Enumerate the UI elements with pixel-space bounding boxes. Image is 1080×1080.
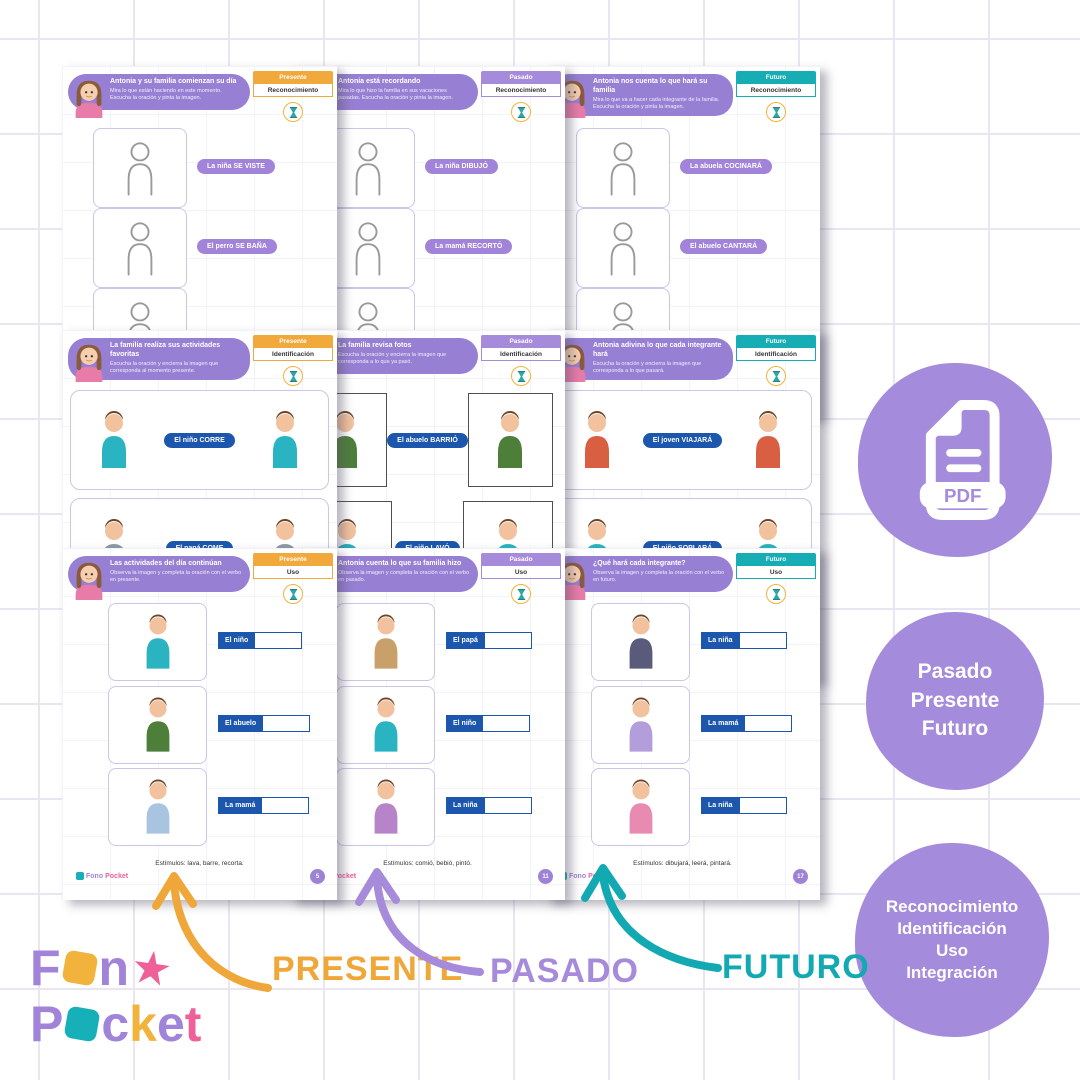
person-icon (577, 410, 617, 470)
person-icon (622, 696, 660, 754)
worksheet-header: Antonia y su familia comienzan su día Mi… (68, 74, 250, 110)
person-icon (265, 410, 305, 470)
worksheet-futuro-uso: ¿Qué hará cada integrante? Observa la im… (545, 548, 820, 900)
tense-tab: Pasado Uso (481, 553, 561, 604)
pdf-label: PDF (944, 485, 981, 506)
subject-label: El niño (446, 715, 483, 732)
girl-avatar-icon (71, 340, 107, 382)
person-lineart-icon (121, 219, 159, 277)
hourglass-badge (511, 102, 531, 122)
illustration-girl-drawing-flag (591, 603, 690, 681)
illustration-dad-eating (336, 603, 435, 681)
worksheet-presente-uso: Las actividades del día continúan Observ… (62, 548, 337, 900)
person-icon (94, 410, 134, 470)
tense-line: Presente (911, 687, 1000, 715)
sentence-pill: La mamá RECORTÓ (425, 239, 512, 254)
hourglass-badge (766, 584, 786, 604)
hourglass-badge (511, 366, 531, 386)
levels-badge: Reconocimiento Identificación Uso Integr… (855, 843, 1049, 1037)
tense-label: Pasado (481, 553, 561, 565)
person-icon (622, 778, 660, 836)
hourglass-badge (511, 584, 531, 604)
logo-letter: F (30, 943, 61, 993)
hourglass-icon (771, 588, 782, 601)
illustration-boy-dishes (108, 603, 207, 681)
hourglass-icon (516, 588, 527, 601)
level-label: Uso (253, 565, 333, 579)
level-label: Identificación (253, 347, 333, 361)
tense-tab: Presente Uso (253, 553, 333, 604)
worksheet-subtitle: Observa la imagen y completa la oración … (110, 570, 242, 584)
tense-label: Futuro (736, 71, 816, 83)
illustration-boy-drinking (336, 686, 435, 764)
subject-label: La mamá (701, 715, 745, 732)
hourglass-badge (283, 102, 303, 122)
hourglass-badge (766, 366, 786, 386)
pdf-badge: PDF (858, 363, 1052, 557)
subject-label: La niña (446, 797, 485, 814)
person-icon (622, 613, 660, 671)
answer-blank[interactable] (255, 632, 302, 649)
tense-label: Presente (253, 553, 333, 565)
fill-in-row: La niña (701, 632, 787, 649)
illustration-girl-painting-wall (591, 768, 690, 846)
star-icon: ★ (128, 942, 175, 993)
stimuli-footnote: Estímulos: dibujará, leerá, pintará. (545, 860, 820, 867)
sentence-pill: El abuelo CANTARÁ (680, 239, 767, 254)
subject-label: El abuelo (218, 715, 263, 732)
worksheet-header: Antonia adivina lo que cada integrante h… (551, 338, 733, 380)
logo-letter: n (99, 943, 130, 993)
hourglass-badge (283, 584, 303, 604)
tense-label: Presente (253, 71, 333, 83)
logo-letter: P (30, 999, 63, 1049)
person-lineart-icon (349, 219, 387, 277)
hourglass-icon (288, 106, 299, 119)
fill-in-row: La mamá (701, 715, 792, 732)
tense-label: Presente (253, 335, 333, 347)
person-lineart-icon (121, 139, 159, 197)
hourglass-icon (516, 106, 527, 119)
fill-in-row: La mamá (218, 797, 309, 814)
girl-avatar-icon (71, 558, 107, 600)
person-icon (367, 696, 405, 754)
worksheet-subtitle: Mira lo que va a hacer cada integrante d… (593, 97, 725, 111)
level-label: Uso (481, 565, 561, 579)
answer-blank[interactable] (263, 715, 310, 732)
worksheet-subtitle: Observa la imagen y completa la oración … (593, 570, 725, 584)
person-lineart-icon (349, 139, 387, 197)
worksheet-header: ¿Qué hará cada integrante? Observa la im… (551, 556, 733, 592)
fonopocket-mini-icon (76, 872, 84, 880)
hourglass-icon (771, 106, 782, 119)
subject-label: El papá (446, 632, 485, 649)
worksheet-title: Antonia está recordando (338, 78, 470, 87)
subject-label: La niña (701, 632, 740, 649)
worksheet-title: ¿Qué hará cada integrante? (593, 560, 725, 569)
worksheet-subtitle: Escucha la oración y encierra la imagen … (593, 361, 725, 375)
sentence-pill: La niña SE VISTE (197, 159, 275, 174)
fill-in-row: El abuelo (218, 715, 310, 732)
level-line: Integración (906, 962, 998, 984)
worksheet-header: Las actividades del día continúan Observ… (68, 556, 250, 592)
worksheet-title: Antonia cuenta lo que su familia hizo (338, 560, 470, 569)
label-futuro: FUTURO (722, 948, 870, 987)
diamond-icon (64, 1005, 101, 1042)
sentence-pill: El abuelo BARRIÓ (387, 433, 468, 448)
level-label: Reconocimiento (253, 83, 333, 97)
answer-blank[interactable] (740, 797, 787, 814)
worksheet-subtitle: Mira lo que hizo la familia en sus vacac… (338, 88, 470, 102)
worksheet-subtitle: Observa la imagen y completa la oración … (338, 570, 470, 584)
logo-letter: k (129, 999, 157, 1049)
person-icon (490, 410, 530, 470)
label-pasado: PASADO (490, 952, 639, 991)
worksheet-title: Las actividades del día continúan (110, 560, 242, 569)
fill-in-row: El papá (446, 632, 532, 649)
sentence-pill: El niño CORRE (164, 433, 235, 448)
person-icon (367, 613, 405, 671)
answer-blank[interactable] (745, 715, 792, 732)
choice-row: El joven VIAJARÁ (553, 390, 812, 490)
hourglass-badge (766, 102, 786, 122)
logo-letter: t (185, 999, 202, 1049)
diamond-icon (61, 949, 98, 986)
answer-blank[interactable] (485, 797, 532, 814)
worksheet-title: Antonia adivina lo que cada integrante h… (593, 342, 725, 360)
illustration-boy-running (254, 398, 316, 482)
brand-word: Fono (569, 873, 586, 880)
brand-word: Pocket (105, 873, 128, 880)
worksheet-title: La familia revisa fotos (338, 342, 470, 351)
worksheet-header: Antonia nos cuenta lo que hará su famili… (551, 74, 733, 116)
tense-label: Futuro (736, 553, 816, 565)
answer-blank[interactable] (485, 632, 532, 649)
hourglass-icon (516, 370, 527, 383)
illustration-grandma-cooking (576, 128, 670, 208)
fonopocket-logo: F n ★ P c k e t (30, 940, 201, 1052)
illustration-mom-books (591, 686, 690, 764)
worksheet-subtitle: Escucha la oración y encierra la imagen … (110, 361, 242, 375)
tense-label: Pasado (481, 335, 561, 347)
illustration-man-suitcase (566, 398, 628, 482)
illustration-girl-painting (336, 768, 435, 846)
illustration-grandpa-leaves (468, 393, 553, 487)
tense-line: Futuro (922, 715, 988, 743)
page-number-badge: 17 (793, 869, 808, 884)
tense-tab: Futuro Reconocimiento (736, 71, 816, 122)
person-lineart-icon (604, 219, 642, 277)
person-icon (139, 696, 177, 754)
illustration-grandpa-singing (576, 208, 670, 288)
fill-in-row: La niña (701, 797, 787, 814)
tense-label: Futuro (736, 335, 816, 347)
illustration-boy-sitting (83, 398, 145, 482)
brand-word: Pocket (588, 873, 611, 880)
sentence-pill: El joven VIAJARÁ (643, 433, 723, 448)
worksheet-header: La familia realiza sus actividades favor… (68, 338, 250, 380)
subject-label: La mamá (218, 797, 262, 814)
sentence-pill: El perro SE BAÑA (197, 239, 277, 254)
worksheet-title: Antonia y su familia comienzan su día (110, 78, 242, 87)
fill-in-row: El niño (218, 632, 302, 649)
illustration-girl-dressing (93, 128, 187, 208)
logo-line-1: F n ★ (30, 940, 201, 996)
hourglass-badge (283, 366, 303, 386)
sentence-pill: La abuela COCINARÁ (680, 159, 772, 174)
level-label: Reconocimiento (736, 83, 816, 97)
answer-blank[interactable] (262, 797, 309, 814)
promo-canvas: Antonia y su familia comienzan su día Mi… (0, 0, 1080, 1080)
level-line: Reconocimiento (886, 896, 1018, 918)
tense-tab: Pasado Identificación (481, 335, 561, 386)
logo-line-2: P c k e t (30, 996, 201, 1052)
pdf-file-icon: PDF (895, 394, 1015, 526)
level-label: Identificación (736, 347, 816, 361)
tense-label: Pasado (481, 71, 561, 83)
level-line: Identificación (897, 918, 1007, 940)
stimuli-footnote: Estímulos: lava, barre, recorta. (62, 860, 337, 867)
subject-label: El niño (218, 632, 255, 649)
fonopocket-mini-logo: FonoPocket (76, 872, 128, 880)
answer-blank[interactable] (483, 715, 530, 732)
hourglass-icon (288, 588, 299, 601)
fill-in-row: La niña (446, 797, 532, 814)
person-icon (748, 410, 788, 470)
brand-word: Fono (86, 873, 103, 880)
person-icon (367, 778, 405, 836)
logo-letter: c (101, 999, 129, 1049)
tense-tab: Futuro Identificación (736, 335, 816, 386)
illustration-grandpa-sweeping (108, 686, 207, 764)
tenses-badge: Pasado Presente Futuro (866, 612, 1044, 790)
girl-avatar-icon (71, 76, 107, 118)
illustration-man-airplane (737, 398, 799, 482)
answer-blank[interactable] (740, 632, 787, 649)
worksheet-subtitle: Escucha la oración y encierra la imagen … (338, 352, 470, 366)
illustration-dog-bathing (93, 208, 187, 288)
tense-tab: Pasado Reconocimiento (481, 71, 561, 122)
worksheet-title: La familia realiza sus actividades favor… (110, 342, 242, 360)
label-presente: PRESENTE (272, 950, 463, 989)
level-label: Reconocimiento (481, 83, 561, 97)
worksheet-subtitle: Mira lo que están haciendo en este momen… (110, 88, 242, 102)
choice-row: El niño CORRE (70, 390, 329, 490)
worksheet-title: Antonia nos cuenta lo que hará su famili… (593, 78, 725, 96)
illustration-mom-cutting (108, 768, 207, 846)
subject-label: La niña (701, 797, 740, 814)
hourglass-icon (288, 370, 299, 383)
page-number-badge: 5 (310, 869, 325, 884)
fill-in-row: El niño (446, 715, 530, 732)
tense-tab: Presente Identificación (253, 335, 333, 386)
page-number-badge: 11 (538, 869, 553, 884)
level-line: Uso (936, 940, 968, 962)
level-label: Identificación (481, 347, 561, 361)
tense-tab: Presente Reconocimiento (253, 71, 333, 122)
person-icon (139, 613, 177, 671)
sentence-pill: La niña DIBUJÓ (425, 159, 498, 174)
hourglass-icon (771, 370, 782, 383)
person-lineart-icon (604, 139, 642, 197)
level-label: Uso (736, 565, 816, 579)
person-icon (139, 778, 177, 836)
logo-letter: e (157, 999, 185, 1049)
tense-line: Pasado (918, 658, 993, 686)
tense-tab: Futuro Uso (736, 553, 816, 604)
fonopocket-mini-logo: FonoPocket (559, 872, 611, 880)
